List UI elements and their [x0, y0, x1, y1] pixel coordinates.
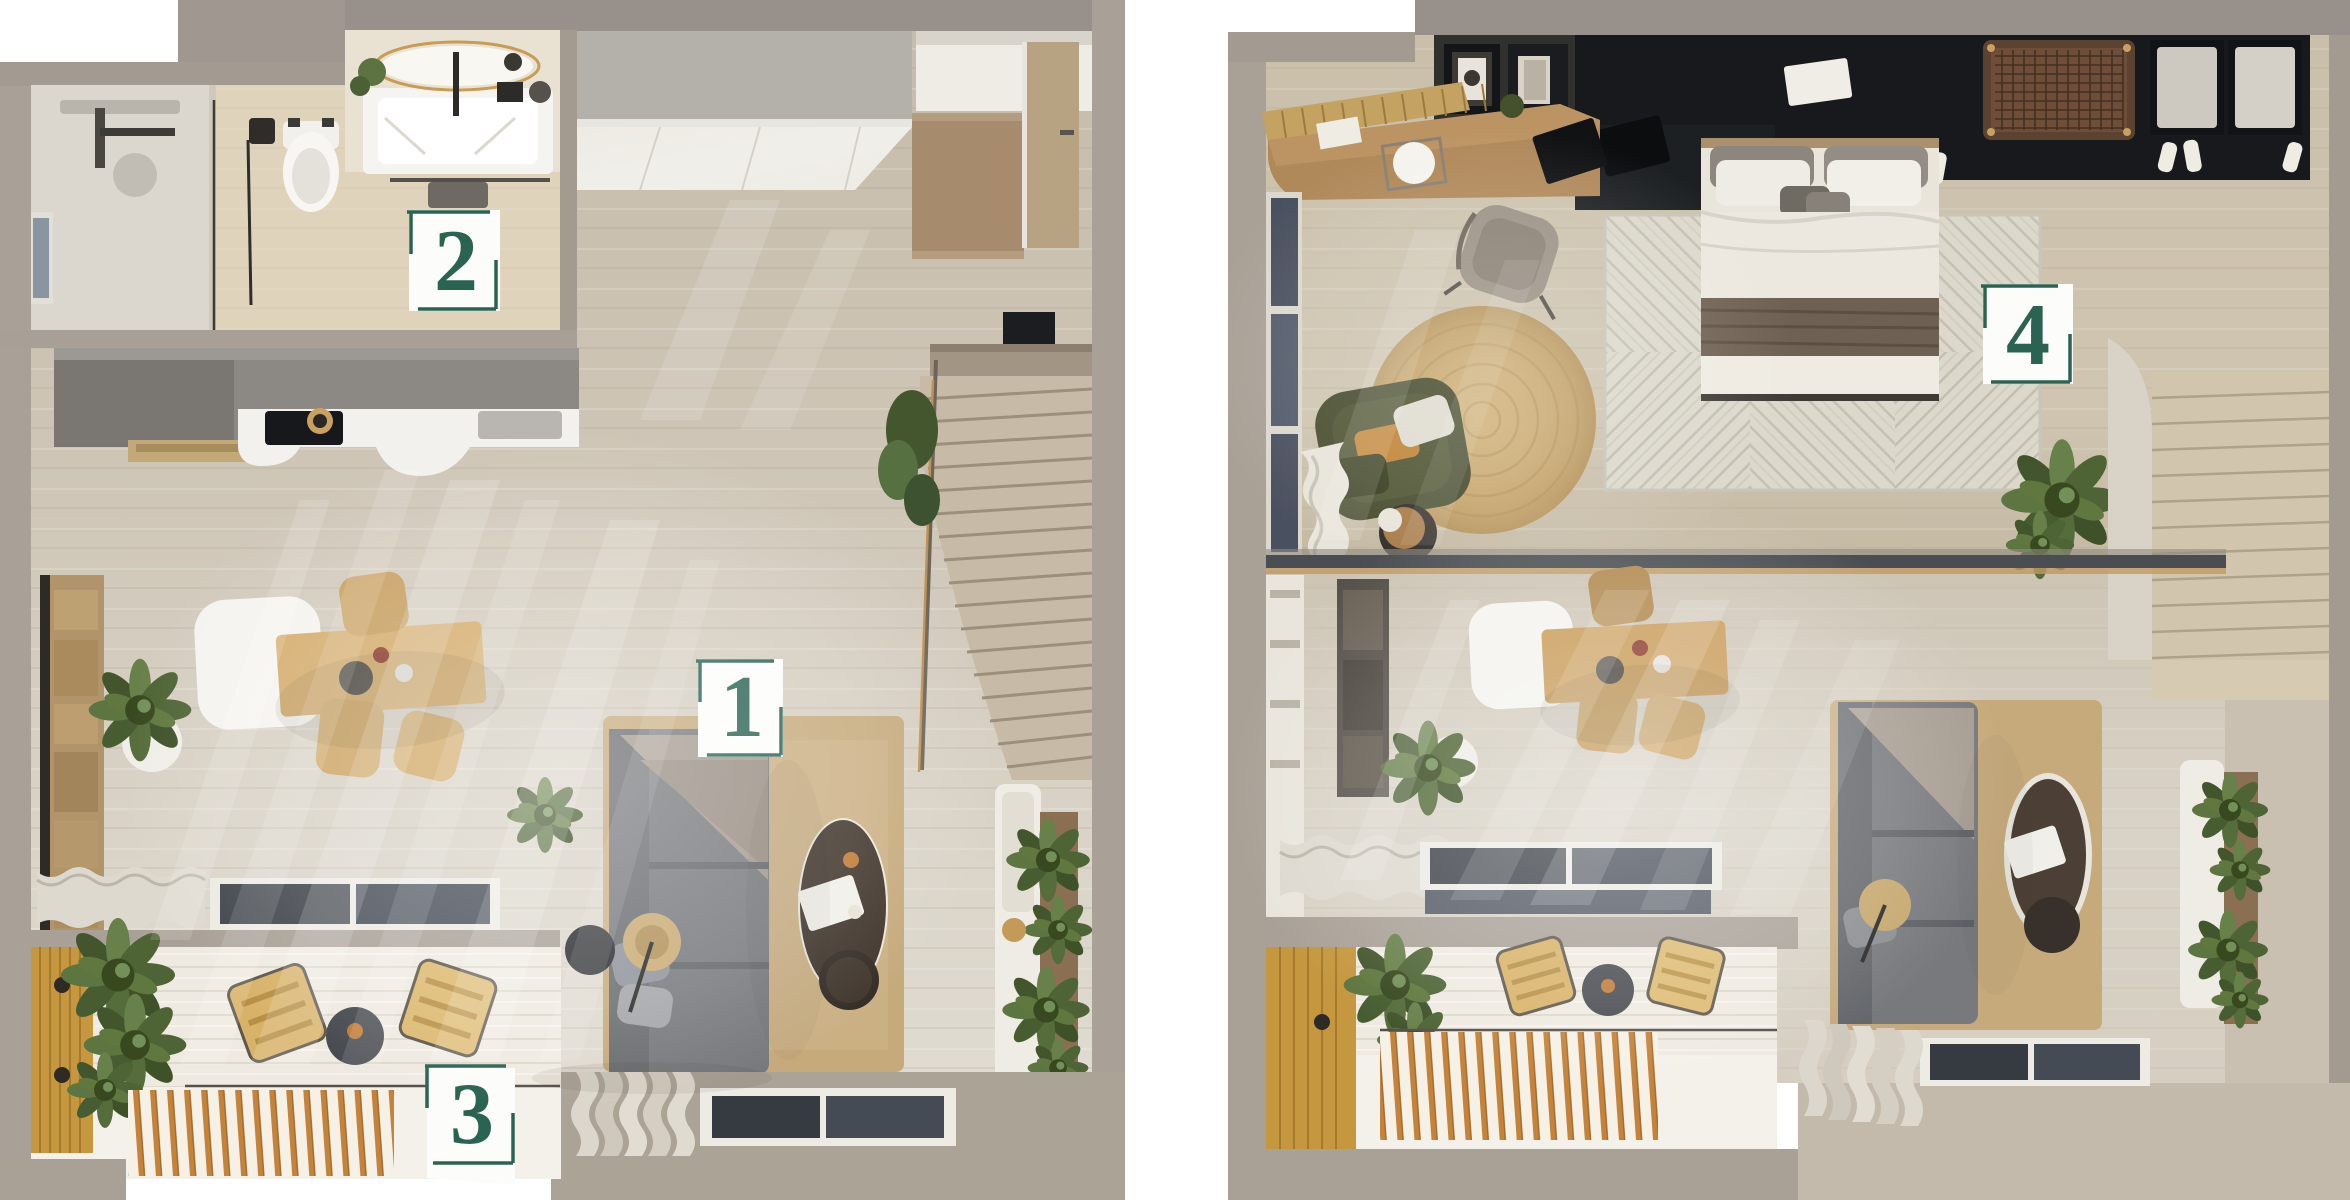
svg-text:2: 2	[434, 213, 478, 310]
svg-text:4: 4	[2006, 287, 2050, 384]
